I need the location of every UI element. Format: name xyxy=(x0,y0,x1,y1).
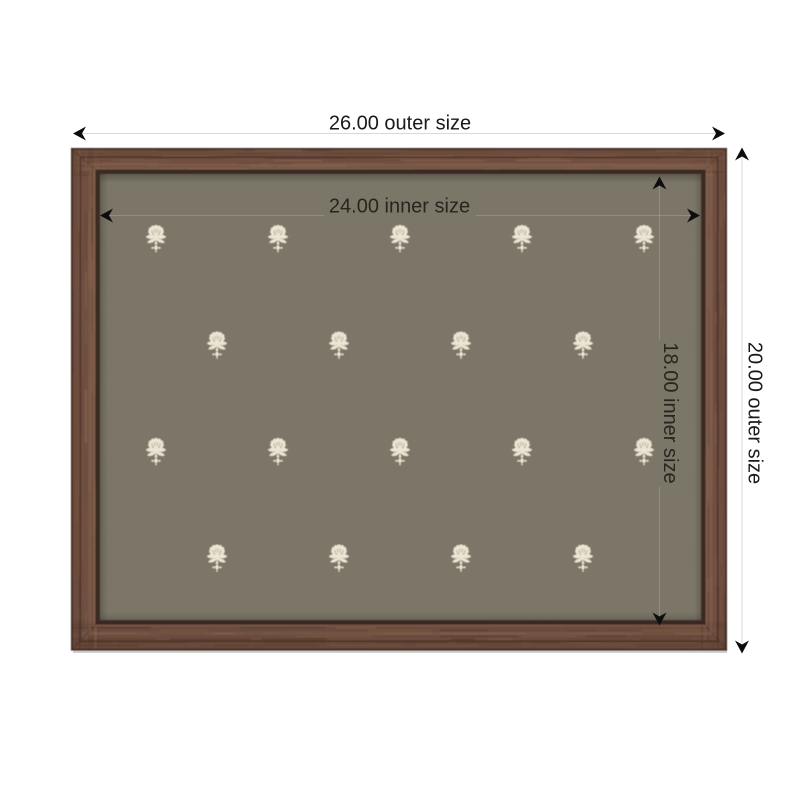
svg-text:26.00 outer size: 26.00 outer size xyxy=(329,113,471,135)
svg-text:18.00 inner size: 18.00 inner size xyxy=(659,342,681,483)
svg-text:20.00 outer size: 20.00 outer size xyxy=(744,342,766,484)
svg-text:24.00 inner size: 24.00 inner size xyxy=(329,196,470,218)
